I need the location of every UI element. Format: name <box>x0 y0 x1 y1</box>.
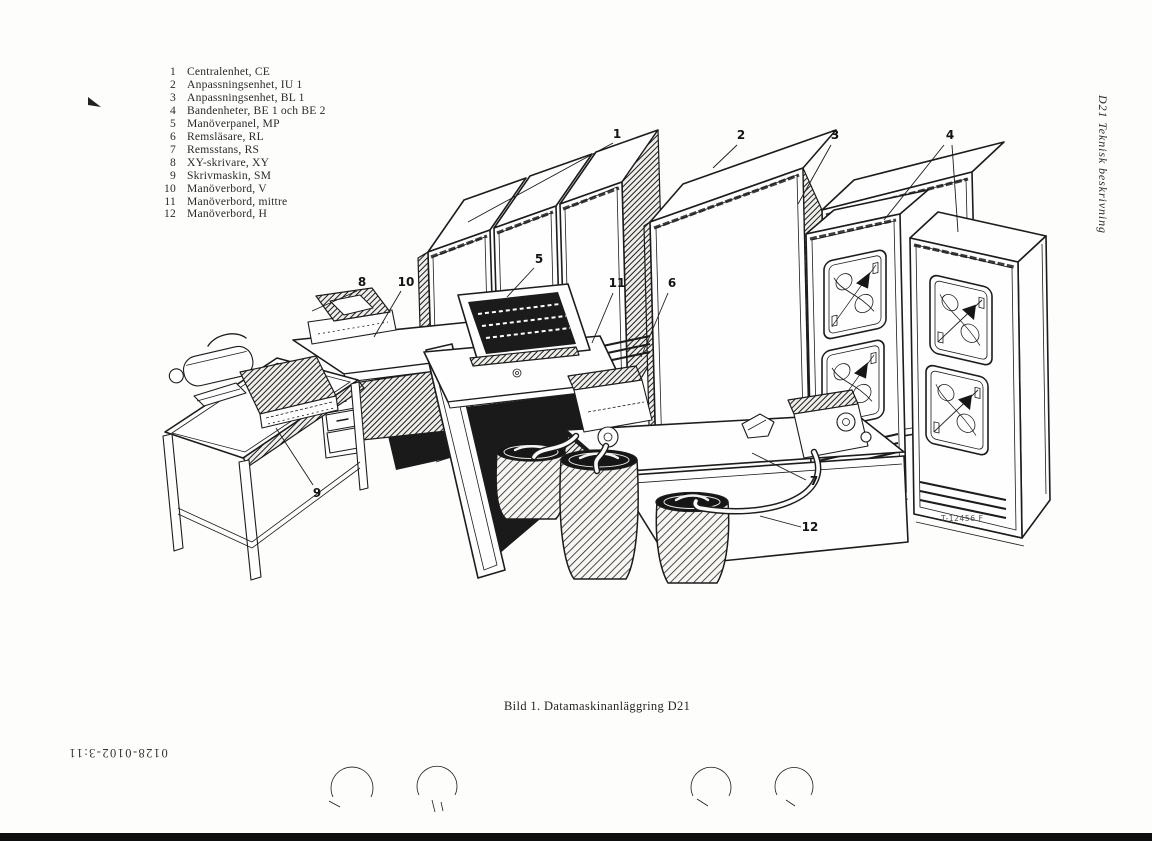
tape-reel-window <box>824 249 886 340</box>
figure-illustration: 1 2 3 4 5 6 7 8 <box>0 0 1152 841</box>
document-number: 0128-0102-3:11 <box>68 745 168 760</box>
svg-text:12: 12 <box>802 520 819 534</box>
svg-text:8: 8 <box>358 275 366 289</box>
figure-ref-label: T-12456 F <box>940 514 984 523</box>
binder-holes <box>329 766 813 812</box>
scan-edge-bar <box>0 833 1152 841</box>
tape-reel-window <box>926 364 988 456</box>
binder-hole <box>691 767 731 806</box>
binder-hole <box>329 767 373 807</box>
svg-text:9: 9 <box>313 486 321 500</box>
waste-basket <box>656 493 729 584</box>
scan-artifact-mark <box>88 97 101 107</box>
svg-text:6: 6 <box>668 276 676 290</box>
callout-9: 9 <box>276 428 321 500</box>
svg-text:5: 5 <box>535 252 543 266</box>
svg-text:3: 3 <box>831 128 839 142</box>
callout-2: 2 <box>713 128 745 168</box>
svg-text:1: 1 <box>613 127 621 141</box>
tape-reel-window <box>930 274 992 366</box>
document-side-label: D21 Teknisk beskrivning <box>1095 95 1110 234</box>
binder-hole <box>417 766 457 812</box>
svg-text:4: 4 <box>946 128 954 142</box>
typewriter-table <box>163 334 368 580</box>
svg-text:11: 11 <box>609 276 626 290</box>
table-shelf-rails <box>178 462 360 548</box>
binder-hole <box>775 768 813 806</box>
tape-unit-be2 <box>910 212 1050 546</box>
figure-caption: Bild 1. Datamaskinanläggring D21 <box>504 699 690 714</box>
svg-text:2: 2 <box>737 128 745 142</box>
svg-text:7: 7 <box>810 474 818 488</box>
svg-text:10: 10 <box>398 275 415 289</box>
scanned-page: 1Centralenhet, CE 2Anpassningsenhet, IU … <box>0 0 1152 841</box>
waste-basket <box>496 443 565 519</box>
